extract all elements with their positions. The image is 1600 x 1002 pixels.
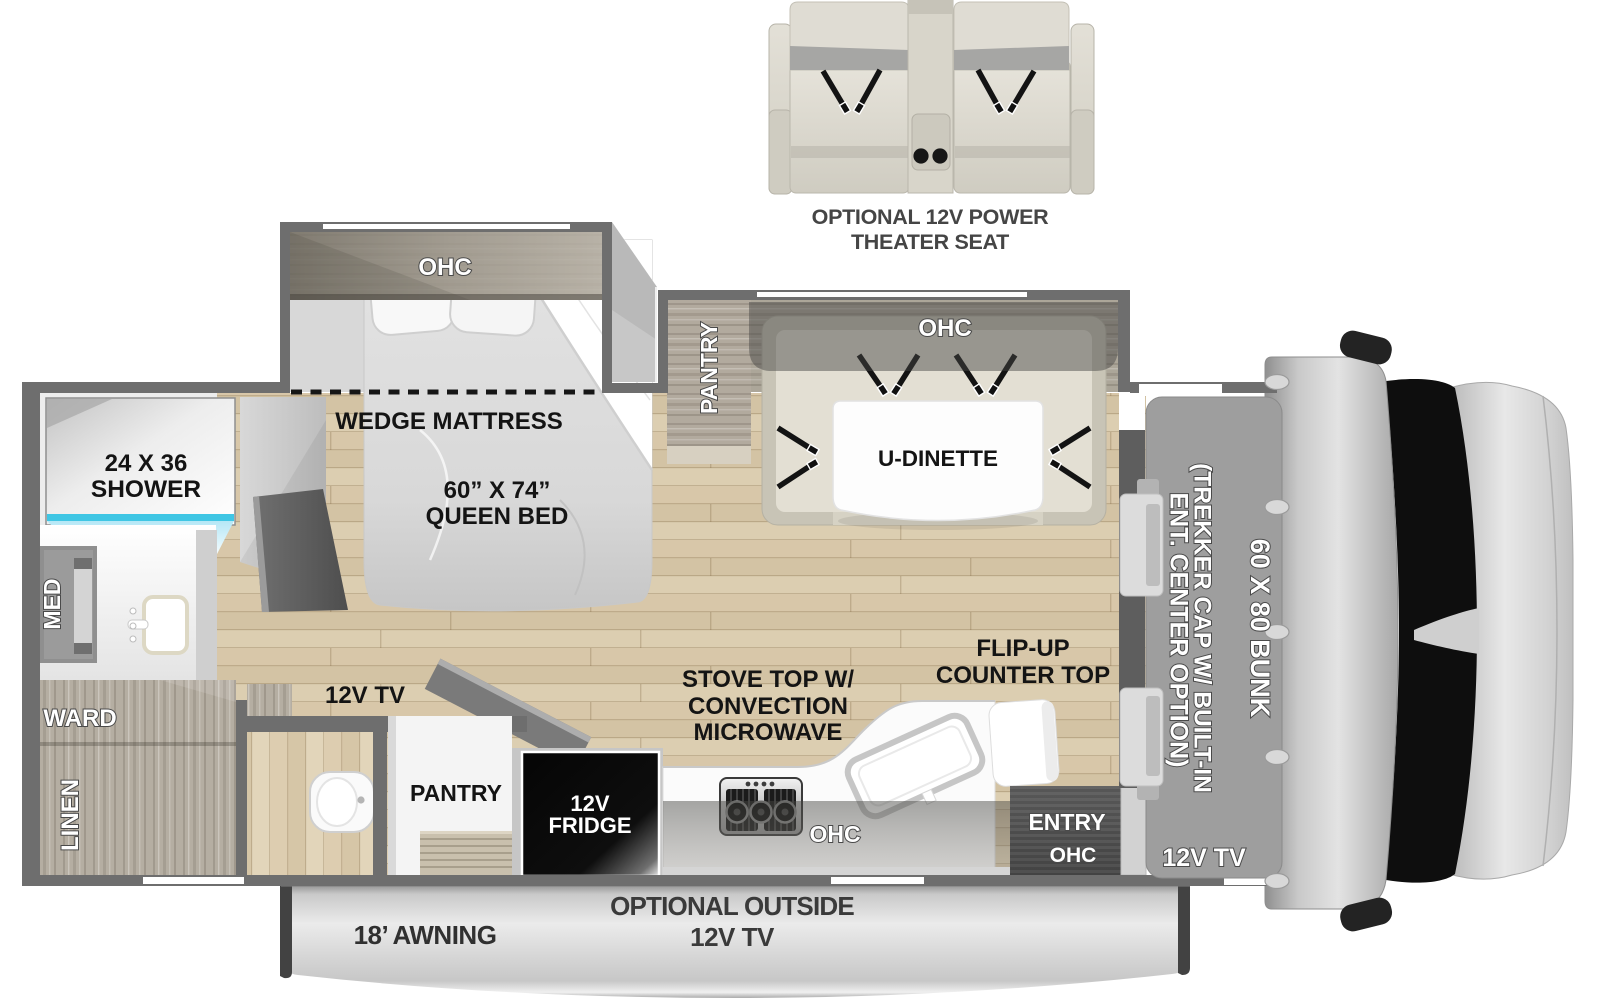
svg-text:U-DINETTE: U-DINETTE [878, 446, 998, 471]
svg-text:60” X 74”: 60” X 74” [444, 477, 551, 504]
svg-text:OHC: OHC [418, 254, 471, 281]
svg-text:CONVECTION: CONVECTION [688, 693, 848, 720]
svg-text:LINEN: LINEN [57, 779, 84, 851]
svg-text:OHC: OHC [1050, 844, 1097, 867]
svg-text:18’ AWNING: 18’ AWNING [354, 920, 497, 950]
svg-text:FRIDGE: FRIDGE [548, 813, 631, 838]
svg-text:12V TV: 12V TV [1162, 844, 1246, 872]
svg-text:60 X 80 BUNK: 60 X 80 BUNK [1245, 539, 1275, 718]
svg-text:OPTIONAL OUTSIDE: OPTIONAL OUTSIDE [610, 891, 854, 921]
svg-text:MICROWAVE: MICROWAVE [694, 719, 843, 746]
svg-text:QUEEN BED: QUEEN BED [426, 503, 569, 530]
svg-text:FLIP-UP: FLIP-UP [976, 635, 1069, 662]
svg-text:ENT. CENTER OPTION): ENT. CENTER OPTION) [1164, 492, 1192, 767]
svg-text:OHC: OHC [809, 821, 860, 847]
svg-text:THEATER SEAT: THEATER SEAT [851, 230, 1009, 254]
svg-text:OHC: OHC [918, 315, 971, 342]
svg-text:12V TV: 12V TV [325, 682, 405, 709]
svg-text:PANTRY: PANTRY [696, 322, 722, 414]
svg-text:12V TV: 12V TV [690, 922, 775, 952]
svg-text:COUNTER TOP: COUNTER TOP [936, 662, 1110, 689]
svg-text:WEDGE MATTRESS: WEDGE MATTRESS [335, 408, 563, 435]
svg-text:PANTRY: PANTRY [410, 780, 502, 806]
svg-text:MED: MED [39, 578, 65, 629]
svg-text:SHOWER: SHOWER [91, 476, 202, 503]
svg-text:OPTIONAL 12V POWER: OPTIONAL 12V POWER [812, 205, 1049, 229]
svg-text:WARD: WARD [43, 705, 116, 732]
svg-text:STOVE TOP W/: STOVE TOP W/ [682, 666, 854, 693]
svg-text:ENTRY: ENTRY [1028, 809, 1105, 835]
svg-text:24 X 36: 24 X 36 [105, 450, 188, 477]
